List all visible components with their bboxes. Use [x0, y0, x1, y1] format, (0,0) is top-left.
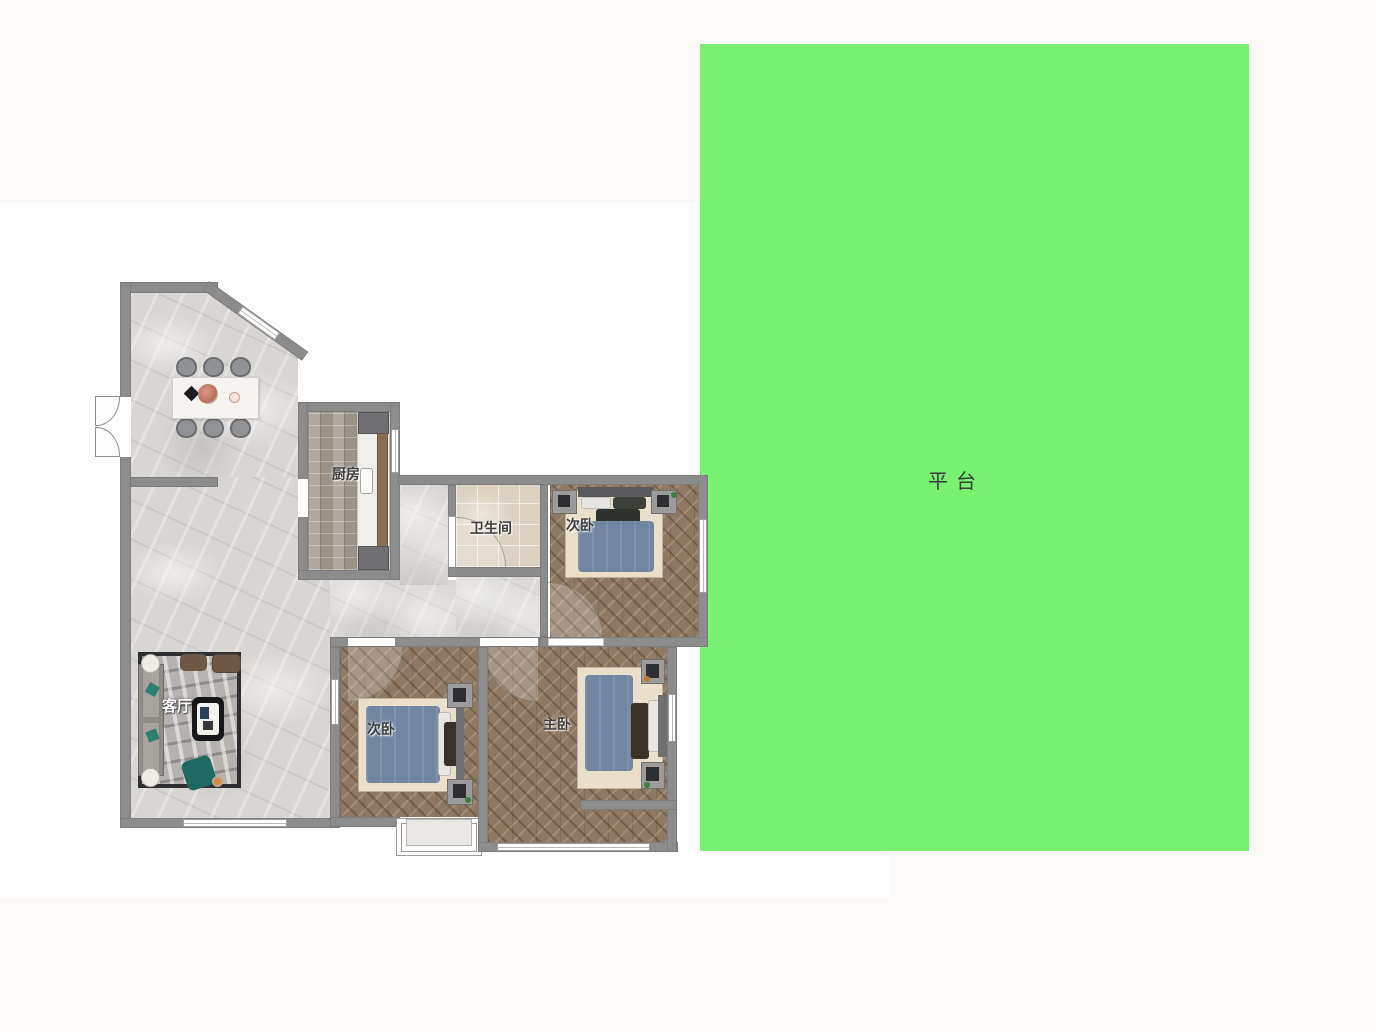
hall-niche-floor: [400, 485, 448, 585]
door-opening-bedroom-top: [548, 638, 604, 646]
wall-kitchen-top: [298, 402, 400, 412]
dining-chair: [230, 418, 251, 438]
wall-kitchen-bottom: [298, 570, 398, 580]
bed-pillow-white: [581, 497, 611, 509]
door-leaf: [95, 427, 120, 457]
bed-bench-dark: [631, 703, 649, 759]
wall-bedroom-left-bottom: [330, 817, 400, 827]
nightstand-lamp: [646, 767, 659, 781]
room-label-bedroom-left: 次卧: [367, 719, 395, 739]
balcony-french-doors: [95, 396, 121, 458]
wall-master-stub: [580, 800, 677, 810]
nightstand-lamp: [657, 495, 669, 507]
room-label-living: 客厅: [162, 695, 192, 716]
bed-headboard: [578, 487, 654, 497]
window-bedroom-top: [699, 519, 707, 593]
coffee-table-tray: [200, 707, 209, 719]
bay-window: [396, 818, 482, 856]
window-master-bottom: [497, 843, 650, 851]
door-opening-kitchen: [298, 479, 308, 517]
door-opening-balcony: [120, 397, 131, 457]
wall-bedrooms-divider: [478, 647, 488, 847]
hall-floor-2: [456, 577, 540, 637]
window-living: [183, 819, 287, 827]
table-centerpiece-flowers: [198, 384, 218, 404]
floorplan-canvas: 厨房 卫生间 次卧 次卧 主卧 客厅 平台: [0, 0, 1376, 1032]
dining-chair: [203, 418, 224, 438]
platform-area: [700, 44, 1249, 851]
bed-pillow-dark: [613, 497, 646, 509]
room-label-master: 主卧: [543, 714, 571, 734]
window-bedroom-left: [331, 679, 339, 725]
wall-bedroom-left-left: [330, 647, 340, 827]
wall-bathroom-bottom: [448, 567, 548, 577]
decor-flower-dot: [212, 776, 223, 787]
wall-north: [398, 475, 708, 485]
nightstand-lamp: [453, 784, 466, 798]
bed-duvet: [366, 706, 440, 783]
kitchen-sink: [360, 468, 373, 494]
pouf: [180, 654, 207, 671]
room-label-kitchen: 厨房: [332, 464, 360, 484]
bed-headboard: [456, 705, 464, 787]
door-opening-master: [480, 638, 538, 646]
bay-window-glass: [406, 819, 472, 846]
bathroom-door-leaf: [448, 516, 456, 568]
side-table: [141, 768, 160, 787]
dining-chair: [230, 357, 251, 377]
table-decor-plate: [229, 392, 240, 403]
kitchen-appliance: [358, 546, 389, 570]
nightstand-plant: [465, 797, 471, 803]
dining-chair: [176, 357, 197, 377]
door-leaf: [95, 396, 120, 426]
dining-chair: [203, 357, 224, 377]
room-label-bedroom-top: 次卧: [566, 515, 594, 535]
dining-chair: [176, 418, 197, 438]
nightstand-plant: [671, 492, 677, 498]
wall-left: [120, 282, 131, 828]
door-opening-bedroom-left: [348, 638, 395, 646]
wall-dining-living-stub: [130, 477, 218, 487]
pouf: [212, 654, 241, 673]
nightstand-decor: [644, 676, 650, 682]
hall-floor: [330, 580, 456, 637]
nightstand-lamp: [453, 688, 466, 702]
wall-master-right: [667, 647, 677, 852]
room-label-bathroom: 卫生间: [470, 518, 512, 538]
kitchen-appliance: [358, 412, 389, 434]
nightstand-lamp: [558, 495, 570, 507]
wall-bathroom-bedroom: [540, 485, 548, 637]
bed-duvet: [585, 675, 633, 771]
room-label-platform: 平台: [928, 465, 984, 494]
kitchen-counter-wood: [377, 427, 388, 553]
bed-headboard: [658, 695, 667, 757]
window-master-right: [668, 694, 676, 742]
side-table: [141, 654, 160, 673]
coffee-table-tray: [203, 721, 213, 730]
nightstand-decor: [644, 782, 650, 788]
window-kitchen: [391, 429, 399, 473]
